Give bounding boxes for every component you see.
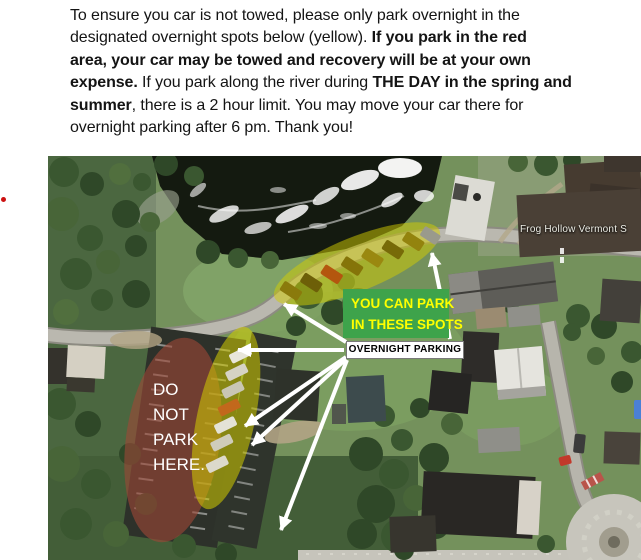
can-park-label: YOU CAN PARK IN THESE SPOTS <box>343 289 449 338</box>
aerial-map-image <box>48 156 641 560</box>
slide: To ensure you car is not towed, please o… <box>0 0 641 560</box>
red-bullet-icon <box>1 197 6 202</box>
notice-paragraph: To ensure you car is not towed, please o… <box>70 5 638 139</box>
notice-line: expense. If you park along the river dur… <box>70 72 638 94</box>
can-park-line2: IN THESE SPOTS <box>351 314 449 335</box>
notice-line: To ensure you car is not towed, please o… <box>70 5 638 27</box>
notice-line: summer, there is a 2 hour limit. You may… <box>70 95 638 117</box>
truck <box>573 434 586 454</box>
can-park-line1: YOU CAN PARK <box>351 293 449 314</box>
notice-line: designated overnight spots below (yellow… <box>70 27 638 49</box>
notice-line: area, your car may be towed and recovery… <box>70 50 638 72</box>
notice-line: overnight parking after 6 pm. Thank you! <box>70 117 638 139</box>
highway-shield-icon <box>634 400 641 419</box>
aerial-map: Frog Hollow Vermont S YOU CAN PARK IN TH… <box>48 156 641 560</box>
do-not-park-label: DO NOT PARK HERE. <box>153 377 205 477</box>
map-place-label: Frog Hollow Vermont S <box>520 224 627 235</box>
overnight-parking-label: OVERNIGHT PARKING <box>346 341 464 359</box>
